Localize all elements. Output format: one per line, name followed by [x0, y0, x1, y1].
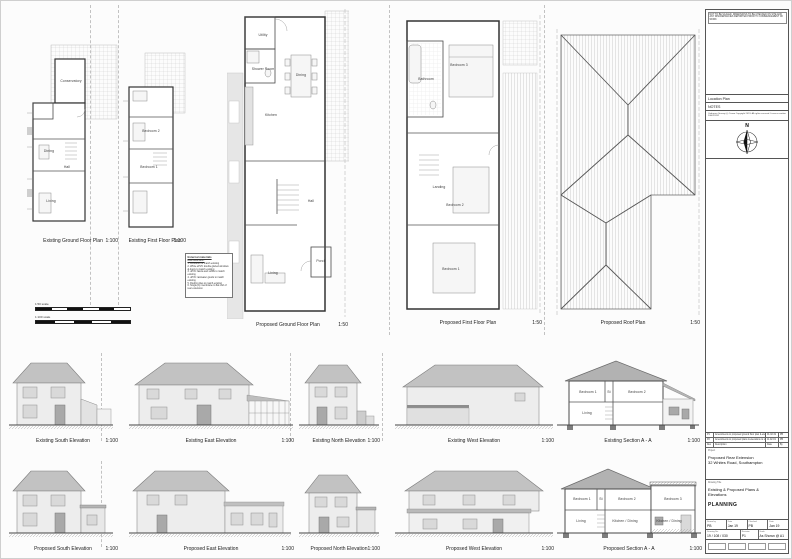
proposed-north-elevation-drawing [297, 461, 381, 543]
figure-caption: Existing North Elevation 1:100 [297, 438, 381, 444]
proposed-roof-plan: Proposed Roof Plan 1:50 [545, 27, 701, 326]
existing-east-elevation-drawing [127, 353, 295, 435]
drawing-sheet: Conservatory Dining Hall Living Existing… [0, 0, 792, 559]
external-materials-note: External materials Rear Extension: 1. Br… [185, 253, 233, 298]
boundary-line [382, 353, 383, 441]
revision-header-date: Date [766, 443, 779, 447]
existing-ground-floor-plan: Conservatory Dining Hall Living Existing… [27, 43, 119, 244]
existing-section-a-a: Bedroom 1 St Bedroom 2 Living Existing S… [555, 353, 701, 444]
revision-cell: Revision P1 [741, 530, 759, 539]
drawing-status: PLANNING [708, 502, 786, 508]
checked-by-label: Checked [749, 521, 767, 523]
caption-scale: 1:100 [105, 438, 118, 444]
revision-by: PB [779, 438, 788, 442]
room-label-bedroom2: Bedroom 2 [446, 203, 464, 207]
existing-east-elevation: Existing East Elevation 1:100 [127, 353, 295, 444]
room-label-st: St [607, 390, 610, 394]
caption-text: Proposed Roof Plan [601, 320, 646, 326]
scale-bars: 1:50 scale 1:100 scale [35, 302, 131, 328]
caption-text: Existing East Elevation [186, 438, 237, 444]
scale-bar-graphic [35, 307, 131, 311]
caption-text: Existing Section A - A [604, 438, 651, 444]
room-label-dining: Dining [44, 149, 54, 153]
existing-north-elevation-drawing [297, 353, 381, 435]
proposed-ground-floor-plan: Utility Shower Room Kitchen Dining Hall … [227, 9, 349, 328]
panel-blank-area [706, 159, 788, 432]
room-label-bedroom1: Bedroom 1 [140, 165, 158, 169]
caption-scale: 1:50 [532, 320, 542, 326]
caption-scale: 1:100 [105, 238, 118, 244]
room-label-hall: Hall [308, 199, 314, 203]
figure-caption: Existing Section A - A 1:100 [555, 438, 701, 444]
disclaimer-note: NOT TO BE SCALED. DIMENSIONS TO BE CHECK… [708, 12, 787, 24]
figure-caption: Existing First Floor Plan 1:100 [123, 238, 187, 244]
scale-bar-graphic [35, 320, 131, 324]
caption-scale: 1:100 [105, 546, 118, 552]
drawn-by-label: Drawn by [707, 521, 725, 523]
drawn-date-cell: Date Jan 19 [727, 520, 748, 529]
drawing-number-label: Drawing No. [707, 531, 739, 533]
caption-scale: 1:100 [367, 438, 380, 444]
checked-date-value: Jan 19 [769, 524, 787, 528]
scale-bar-label: 1:100 scale [35, 315, 131, 319]
revision-header-by: By [779, 443, 788, 447]
caption-text: Proposed North Elevation [311, 546, 368, 552]
caption-text: Existing Ground Floor Plan [43, 238, 103, 244]
project-address: 32 Whites Road, Southampton [708, 460, 786, 465]
scale-label: Scale [760, 531, 787, 533]
figure-caption: Proposed North Elevation 1:100 [297, 546, 381, 552]
caption-scale: 1:50 [338, 322, 348, 328]
room-label-bathroom: Bathroom [418, 77, 434, 81]
room-label-living: Living [268, 271, 277, 275]
figure-caption: Proposed South Elevation 1:100 [7, 546, 119, 552]
caption-text: Existing South Elevation [36, 438, 90, 444]
room-label-living: Living [576, 519, 585, 523]
caption-scale: 1:100 [281, 438, 294, 444]
figure-caption: Existing Ground Floor Plan 1:100 [27, 238, 119, 244]
drawing-number-cell: Drawing No. 19 / 108 / 030 [706, 530, 741, 539]
drawing-number-value: 19 / 108 / 030 [707, 534, 739, 538]
revision-id: P2 [706, 438, 714, 442]
figure-caption: Existing South Elevation 1:100 [7, 438, 119, 444]
room-label-porch: Porch [316, 259, 325, 263]
existing-first-floor-plan-drawing [123, 51, 187, 235]
drawn-date-value: Jan 19 [728, 524, 746, 528]
proposed-first-floor-plan: Bedroom 3 Bathroom Landing Bedroom 2 Bed… [393, 15, 543, 326]
scale-bar-50: 1:50 scale [35, 302, 131, 311]
boundary-line [389, 5, 390, 335]
existing-west-elevation-drawing [393, 353, 555, 435]
accreditation-box [748, 543, 766, 550]
existing-west-elevation: Existing West Elevation 1:100 [393, 353, 555, 444]
figure-caption: Proposed Section A - A 1:100 [555, 546, 703, 552]
caption-text: Proposed Section A - A [603, 546, 654, 552]
scale-value: As Shown @ A1 [760, 534, 787, 538]
caption-scale: 1:100 [689, 546, 702, 552]
room-label-conservatory: Conservatory [60, 79, 81, 83]
checked-date-cell: Date Jan 19 [768, 520, 788, 529]
caption-scale: 1:100 [367, 546, 380, 552]
room-label-hall: Hall [64, 165, 70, 169]
project-box: Project Proposed Rear Extension 32 White… [706, 448, 788, 480]
notes-label: NOTES [706, 103, 788, 111]
caption-scale: 1:100 [687, 438, 700, 444]
caption-text: Proposed South Elevation [34, 546, 92, 552]
room-label-living: Living [46, 199, 55, 203]
drawing-title-box: Drawing Title Existing & Proposed Plans … [706, 480, 788, 520]
existing-ground-floor-plan-drawing [27, 43, 119, 235]
caption-text: Existing West Elevation [448, 438, 500, 444]
existing-first-floor-plan: Bedroom 2 Bedroom 1 Existing First Floor… [123, 51, 187, 244]
drawn-date-label: Date [728, 521, 746, 523]
room-label-kitchen: Kitchen [265, 113, 277, 117]
proposed-section-a-a-drawing [555, 461, 703, 543]
revision-id: P1 [706, 433, 714, 437]
proposed-south-elevation-drawing [7, 461, 119, 543]
location-plan-image [706, 25, 788, 95]
location-plan-label: Location Plan [706, 95, 788, 103]
figure-caption: Proposed Ground Floor Plan 1:50 [227, 322, 349, 328]
figure-caption: Existing East Elevation 1:100 [127, 438, 295, 444]
caption-text: Proposed East Elevation [184, 546, 239, 552]
caption-scale: 1:100 [173, 238, 186, 244]
checked-by-cell: Checked PB [748, 520, 769, 529]
existing-north-elevation: Existing North Elevation 1:100 [297, 353, 381, 444]
checked-date-label: Date [769, 521, 787, 523]
revision-value: P1 [742, 534, 757, 538]
room-label-bedroom1: Bedroom 1 [579, 390, 597, 394]
revision-desc: Amendments to proposed ground floor plan… [714, 433, 766, 437]
caption-scale: 1:100 [281, 546, 294, 552]
room-label-bedroom1: Bedroom 1 [573, 497, 591, 501]
revision-table: P1 Amendments to proposed ground floor p… [706, 432, 788, 448]
scale-cell: Scale As Shown @ A1 [759, 530, 788, 539]
project-label: Project [708, 450, 786, 452]
proposed-west-elevation: Proposed West Elevation 1:100 [393, 461, 555, 552]
proposed-first-floor-plan-drawing [393, 15, 543, 317]
proposed-south-elevation: Proposed South Elevation 1:100 [7, 461, 119, 552]
drawing-title: Existing & Proposed Plans & Elevations [708, 487, 778, 497]
proposed-east-elevation: Proposed East Elevation 1:100 [127, 461, 295, 552]
materials-item: 6. Single ply membrane to flat roof of r… [188, 285, 231, 291]
room-label-dining: Dining [296, 73, 306, 77]
proposed-west-elevation-drawing [393, 461, 555, 543]
caption-text: Existing North Elevation [312, 438, 365, 444]
room-label-kitchen-dining: Kitchen / Dining [612, 519, 637, 523]
os-copyright: Ordnance Survey (c) Crown Copyright 2019… [706, 111, 788, 120]
room-label-bedroom3: Bedroom 3 [450, 63, 468, 67]
existing-south-elevation: Existing South Elevation 1:100 [7, 353, 119, 444]
scale-bar-100: 1:100 scale [35, 315, 131, 324]
revision-date: 01.02.19 [766, 433, 779, 437]
drawing-number-row: Drawing No. 19 / 108 / 030 Revision P1 S… [706, 530, 788, 540]
revision-by: PB [779, 433, 788, 437]
revision-date: 11.02.19 [766, 438, 779, 442]
north-arrow: N [706, 121, 788, 159]
accreditation-strip [706, 540, 788, 553]
proposed-ground-floor-plan-drawing [227, 9, 349, 319]
caption-scale: 1:100 [541, 546, 554, 552]
proposed-north-elevation: Proposed North Elevation 1:100 [297, 461, 381, 552]
drawn-by-cell: Drawn by PB [706, 520, 727, 529]
figure-caption: Proposed Roof Plan 1:50 [545, 320, 701, 326]
revision-header-desc: Description [714, 443, 766, 447]
title-block-panel: NOT TO BE SCALED. DIMENSIONS TO BE CHECK… [705, 9, 789, 554]
room-label-kitchen-dining: Kitchen / Dining [656, 519, 681, 523]
room-label-bedroom2: Bedroom 2 [628, 390, 646, 394]
materials-title: External materials [188, 255, 212, 259]
room-label-st: St [599, 497, 602, 501]
revision-label: Revision [742, 531, 757, 533]
proposed-roof-plan-drawing [545, 27, 701, 317]
drawn-checked-row: Drawn by PB Date Jan 19 Checked PB Date … [706, 520, 788, 530]
accreditation-box [708, 543, 726, 550]
room-label-bedroom3: Bedroom 3 [664, 497, 682, 501]
caption-text: Proposed West Elevation [446, 546, 502, 552]
figure-caption: Proposed East Elevation 1:100 [127, 546, 295, 552]
room-label-bedroom2: Bedroom 2 [618, 497, 636, 501]
checked-by-value: PB [749, 524, 767, 528]
scale-bar-label: 1:50 scale [35, 302, 131, 306]
revision-desc: Amendments to proposed plans & elevation… [714, 438, 766, 442]
drawing-title-label: Drawing Title [708, 482, 786, 484]
room-label-bedroom1: Bedroom 1 [442, 267, 460, 271]
existing-south-elevation-drawing [7, 353, 119, 435]
caption-text: Proposed Ground Floor Plan [256, 322, 320, 328]
caption-text: Proposed First Floor Plan [440, 320, 497, 326]
figure-caption: Proposed First Floor Plan 1:50 [393, 320, 543, 326]
room-label-bedroom2: Bedroom 2 [142, 129, 160, 133]
existing-section-a-a-drawing [555, 353, 701, 435]
drawn-by-value: PB [707, 524, 725, 528]
compass-icon [734, 129, 760, 155]
room-label-living: Living [582, 411, 591, 415]
accreditation-box [768, 543, 786, 550]
accreditation-box [728, 543, 746, 550]
figure-caption: Proposed West Elevation 1:100 [393, 546, 555, 552]
room-label-shower-room: Shower Room [252, 67, 275, 71]
figure-caption: Existing West Elevation 1:100 [393, 438, 555, 444]
caption-scale: 1:50 [690, 320, 700, 326]
revision-header-rev: Rev [706, 443, 714, 447]
room-label-utility: Utility [259, 33, 268, 37]
proposed-section-a-a: Bedroom 1 St Bedroom 2 Bedroom 3 Living … [555, 461, 703, 552]
caption-scale: 1:100 [541, 438, 554, 444]
room-label-landing: Landing [433, 185, 446, 189]
proposed-east-elevation-drawing [127, 461, 295, 543]
